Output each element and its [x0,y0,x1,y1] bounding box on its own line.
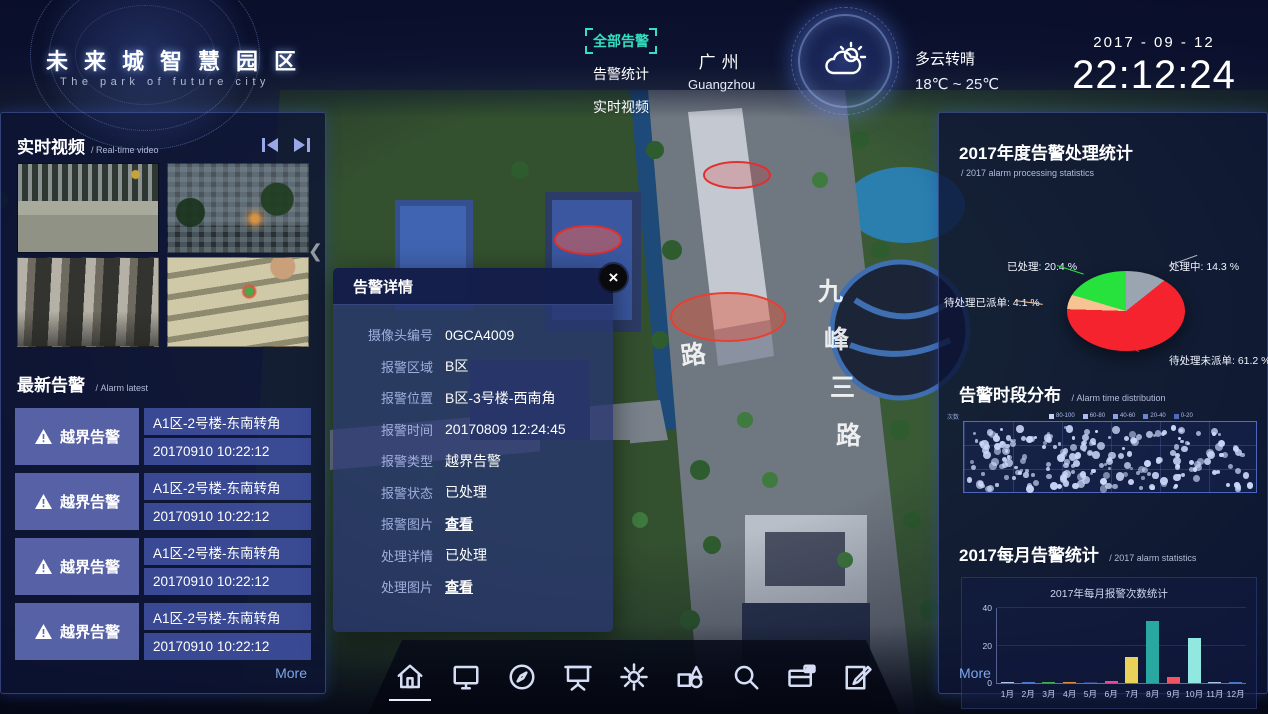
scatter-dot [1023,472,1028,477]
x-tick-label: 1月 [1001,688,1014,700]
scatter-dot [1118,453,1124,459]
alarm-row[interactable]: 越界告警A1区-2号楼-东南转角20170910 10:22:12 [15,603,311,660]
warning-icon [34,428,53,445]
right-panel: 2017年度告警处理统计 / 2017 alarm processing sta… [938,112,1268,694]
scatter-dot [987,485,994,492]
popup-row-label: 报警区域 [333,357,433,376]
scatter-dot [971,465,976,470]
scatter-dot [1092,451,1100,459]
scatter-legend-item: 80-100 [1049,413,1075,419]
scatter-dot [994,443,1001,450]
popup-row-label: 报警位置 [333,388,433,407]
close-icon[interactable]: × [600,264,627,291]
scatter-dot [1033,480,1039,486]
warning-icon [34,558,53,575]
skip-previous-icon[interactable] [261,137,279,153]
alarm-row[interactable]: 越界告警A1区-2号楼-东南转角20170910 10:22:12 [15,408,311,465]
scatter-dot [1106,458,1113,465]
legend-swatch-icon [1143,414,1148,419]
scatter-dot [1071,470,1075,474]
bottom-toolbar [368,640,900,714]
compass-icon[interactable] [505,657,539,697]
alarm-type-badge: 越界告警 [15,473,139,530]
scatter-dot [973,432,976,435]
x-tick-label: 6月 [1105,688,1118,700]
nav-item-active[interactable]: 全部告警 [585,28,657,54]
x-tick-label: 9月 [1167,688,1180,700]
weather-temperature: 18℃ ~ 25℃ [915,75,999,93]
scatter-dot [976,480,984,488]
alarm-row[interactable]: 越界告警A1区-2号楼-东南转角20170910 10:22:12 [15,538,311,595]
pie-label-done: 已处理: 20.4 % [1007,259,1077,274]
alarm-zone-1[interactable] [704,162,770,188]
legend-swatch-icon [1049,414,1054,419]
bar-10月[interactable] [1188,638,1201,683]
weather-description: 多云转晴 [915,48,999,69]
scatter-dot [1112,484,1117,489]
scatter-dot [1031,473,1035,477]
scatter-dot [1171,425,1176,430]
scatter-dot [1122,447,1125,450]
scatter-dot [967,477,973,483]
shapes-icon[interactable] [673,657,707,697]
popup-row-label: 摄像头编号 [333,325,433,344]
popup-row-label: 报警类型 [333,451,433,470]
scatter-dot [1046,474,1051,479]
video-grid [17,163,311,347]
app-subtitle: The park of future city [60,76,270,88]
popup-row-label: 处理详情 [333,546,433,565]
alarm-location: A1区-2号楼-东南转角 [144,603,311,630]
scatter-dot [1128,479,1134,485]
x-tick-label: 2月 [1022,688,1035,700]
scatter-dot [1097,442,1105,450]
scatter-dot [1095,430,1098,433]
scatter-dot [1058,442,1062,446]
popup-row-label: 报警图片 [333,514,433,533]
scatter-dot [1018,471,1022,475]
bar-4月[interactable] [1063,682,1076,683]
popup-row-value: B区 [445,356,468,376]
scatter-dot [1087,450,1093,456]
scatter-dot [1204,458,1211,465]
scatter-dot [1046,462,1051,467]
scatter-dot [1005,459,1013,467]
pie-label-unsent: 待处理未派单: 61.2 % [1169,353,1268,368]
bar-section-title: 2017每月告警统计 [959,546,1099,565]
scatter-dot [1042,445,1046,449]
scatter-dot [1108,467,1111,470]
alarm-time: 20170910 10:22:12 [144,568,311,595]
left-panel: 实时视频 / Real-time video ❮ 最新告警 / Alarm la… [0,112,326,694]
x-tick-label: 10月 [1185,688,1203,700]
scatter-dot [1075,456,1079,460]
scatter-legend: 80-10060-8040-6020-400-20 [1049,413,1193,419]
scatter-dot [1197,458,1204,465]
scatter-dot [1092,442,1096,446]
legend-swatch-icon [1083,414,1088,419]
popup-row: 处理图片查看 [333,571,613,603]
bar-5月[interactable] [1084,682,1097,683]
alarm-time: 20170910 10:22:12 [144,633,311,660]
scatter-dot [1021,436,1026,441]
scatter-dot [1174,484,1178,488]
bar-1月[interactable] [1001,682,1014,683]
scatter-dot [995,433,998,436]
app-title: 未来城智慧园区 [46,44,312,76]
x-tick-label: 3月 [1042,688,1055,700]
projection-screen-icon[interactable] [561,657,595,697]
video-section-title: 实时视频 [17,133,85,158]
scatter-dot [1181,446,1188,453]
scatter-dot [1072,436,1076,440]
popup-row-label: 报警状态 [333,483,433,502]
scatter-dot [1156,459,1161,464]
popup-row-value: 20170809 12:24:45 [445,421,566,437]
alarm-type-badge: 越界告警 [15,538,139,595]
weather-text: 多云转晴 18℃ ~ 25℃ [915,48,999,93]
scatter-dot [1034,436,1037,439]
scatter-dot [981,472,984,475]
alarm-zone-2[interactable] [555,226,621,254]
scatter-dot [1105,483,1112,490]
scatter-dot [1123,472,1128,477]
gridline [997,645,1246,646]
scatter-legend-item: 60-80 [1083,413,1105,419]
search-icon[interactable] [729,657,763,697]
scatter-dot [1162,430,1167,435]
scatter-dot [1193,475,1200,482]
pie-section-title: 2017年度告警处理统计 [959,144,1133,163]
popup-row: 报警区域B区 [333,351,613,383]
scatter-dot [1080,444,1087,451]
city-name-en: Guangzhou [688,77,755,92]
scatter-dot [1136,434,1143,441]
scatter-dot [1174,444,1180,450]
scatter-dot [1006,435,1011,440]
popup-row-label: 报警时间 [333,420,433,439]
scatter-dot [1013,439,1016,442]
legend-swatch-icon [1174,414,1179,419]
popup-row: 报警状态已处理 [333,477,613,509]
popup-header: 告警详情 [333,268,613,305]
scatter-dot [1152,472,1158,478]
bar-11月[interactable] [1208,682,1221,683]
scatter-dot [1000,428,1003,431]
scatter-dot [970,460,975,465]
scatter-dot [1189,460,1194,465]
popup-row: 报警时间20170809 12:24:45 [333,414,613,446]
scatter-dot [1104,463,1107,466]
scatter-dot [1072,483,1078,489]
scatter-dot [1175,464,1181,470]
scatter-dot [1228,464,1233,469]
scatter-dot [1196,431,1201,436]
video-thumbnail-2[interactable] [167,163,309,253]
scatter-dot [1004,475,1008,479]
scatter-dot [995,483,998,486]
scatter-dot [1063,463,1068,468]
video-section-subtitle: / Real-time video [91,145,159,155]
scatter-dot [1144,460,1151,467]
gridline [997,607,1246,608]
map-building-d-top [765,532,845,586]
video-thumbnail-3[interactable] [17,257,159,347]
skip-next-icon[interactable] [293,137,311,153]
scatter-dot [1124,436,1129,441]
scatter-dot [1155,430,1162,437]
scatter-dot [1181,473,1185,477]
alarm-location: A1区-2号楼-东南转角 [144,408,311,435]
popup-row: 摄像头编号0GCA4009 [333,319,613,351]
x-tick-label: 12月 [1227,688,1245,700]
scatter-dot [1240,453,1244,457]
city-name-cn: 广州 [688,48,755,73]
scatter-dot [1247,482,1253,488]
scatter-section-subtitle: / Alarm time distribution [1071,393,1165,403]
scatter-chart[interactable] [963,421,1257,493]
popup-view-link[interactable]: 查看 [445,577,473,597]
scatter-dot [1010,441,1016,447]
popup-title: 告警详情 [353,276,413,297]
scatter-dot [1112,426,1120,434]
scatter-dot [1050,482,1058,490]
nav-item-[interactable]: 实时视频 [585,94,657,120]
x-tick-label: 5月 [1084,688,1097,700]
bar-inner-title: 2017年每月报警次数统计 [962,586,1256,601]
bar-chart[interactable]: 2017年每月报警次数统计 020401月2月3月4月5月6月7月8月9月10月… [961,577,1257,709]
pie-graphic[interactable] [1067,271,1185,351]
id-card-icon[interactable] [785,657,819,697]
scatter-dot [1173,474,1181,482]
bar-12月[interactable] [1229,682,1242,683]
alarm-row[interactable]: 越界告警A1区-2号楼-东南转角20170910 10:22:12 [15,473,311,530]
scatter-dot [1146,431,1153,438]
bar-6月[interactable] [1105,681,1118,683]
x-tick-label: 11月 [1206,688,1223,700]
scatter-dot [1070,444,1077,451]
scatter-axis-label: 次数 [947,412,959,421]
scatter-dot [1206,449,1214,457]
weather-widget[interactable] [798,14,892,108]
popup-row-value: B区-3号楼-西南角 [445,388,555,408]
scatter-dot [991,458,999,466]
video-thumbnail-1[interactable] [17,163,159,253]
video-thumbnail-4[interactable] [167,257,309,347]
x-tick-label: 7月 [1125,688,1138,700]
scatter-dot [1215,443,1223,451]
bar-9月[interactable] [1167,677,1180,683]
pie-chart: 已处理: 20.4 % 处理中: 14.3 % 待处理已派单: 4.1 % 待处… [939,179,1268,369]
nav-item-[interactable]: 告警统计 [585,61,657,87]
popup-row: 报警位置B区-3号楼-西南角 [333,382,613,414]
scatter-dot [1127,451,1133,457]
x-tick-label: 4月 [1063,688,1076,700]
popup-row: 报警类型越界告警 [333,445,613,477]
home-icon[interactable] [393,657,427,697]
scatter-dot [1108,436,1111,439]
scatter-dot [1044,434,1052,442]
scatter-dot [1187,442,1190,445]
scatter-dot [1226,483,1230,487]
popup-view-link[interactable]: 查看 [445,514,473,534]
cloud-sun-icon [821,39,869,83]
road-label-side: 路 [679,339,710,370]
warning-icon [34,623,53,640]
alarm-location: A1区-2号楼-东南转角 [144,473,311,500]
scatter-dot [1139,486,1143,490]
bar-3月[interactable] [1042,682,1055,683]
scatter-section-title: 告警时段分布 [959,386,1061,405]
scatter-dot [975,439,978,442]
bar-2月[interactable] [1022,682,1035,683]
alarm-detail-popup: 告警详情 × 摄像头编号0GCA4009报警区域B区报警位置B区-3号楼-西南角… [333,268,613,632]
scatter-dot [1147,472,1151,476]
legend-swatch-icon [1113,414,1118,419]
scatter-dot [1043,441,1047,445]
alarm-zone-3[interactable] [671,293,785,341]
bar-section-subtitle: / 2017 alarm statistics [1109,553,1196,563]
alarm-time: 20170910 10:22:12 [144,438,311,465]
pie-section-subtitle: / 2017 alarm processing statistics [961,168,1133,178]
alarm-time: 20170910 10:22:12 [144,503,311,530]
y-tick-label: 40 [983,603,992,613]
scatter-dot [1212,470,1217,475]
bar-7月[interactable] [1125,657,1138,683]
scatter-dot [1160,477,1168,485]
main-nav: 全部告警告警统计实时视频 [566,28,676,127]
scatter-dot [1046,467,1050,471]
y-tick-label: 20 [983,641,992,651]
scatter-dot [1243,472,1249,478]
scatter-dot [1063,470,1071,478]
bar-plot-area: 020401月2月3月4月5月6月7月8月9月10月11月12月 [996,608,1246,684]
alarm-type-badge: 越界告警 [15,603,139,660]
stats-more-link[interactable]: More [959,665,991,681]
scatter-dot [1218,433,1221,436]
alarm-list: 越界告警A1区-2号楼-东南转角20170910 10:22:12越界告警A1区… [15,408,311,668]
edit-icon[interactable] [841,657,875,697]
popup-row-value: 0GCA4009 [445,327,514,343]
scatter-dot [1195,464,1202,471]
monitor-icon[interactable] [449,657,483,697]
alarm-section-subtitle: / Alarm latest [95,383,148,393]
city-block: 广州 Guangzhou [688,48,755,92]
scatter-dot [1130,467,1133,470]
scatter-dot [1022,454,1028,460]
scatter-dot [1091,469,1096,474]
carousel-chevron-icon[interactable]: ❮ [308,241,323,262]
x-tick-label: 8月 [1146,688,1159,700]
scatter-legend-item: 0-20 [1174,413,1193,419]
scatter-dot [1016,425,1023,432]
scatter-dot [1170,450,1176,456]
alarm-type-badge: 越界告警 [15,408,139,465]
warning-icon [34,493,53,510]
scatter-dot [1141,476,1145,480]
scatter-dot [1180,440,1183,443]
scatter-dot [1012,476,1016,480]
scatter-dot [1073,460,1080,467]
scatter-dot [1057,484,1062,489]
alarm-section-title: 最新告警 [17,376,85,395]
scatter-legend-item: 20-40 [1143,413,1165,419]
scatter-dot [1014,466,1018,470]
gear-icon[interactable] [617,657,651,697]
scatter-dot [1179,429,1183,433]
scatter-legend-item: 40-60 [1113,413,1135,419]
time-text: 22:12:24 [1070,53,1238,98]
date-text: 2017 - 09 - 12 [1070,34,1238,51]
scatter-dot [1235,468,1241,474]
scatter-dot [1026,436,1033,443]
popup-row-value: 已处理 [445,545,487,565]
dashboard: 九峰三路 路 未来城智慧园区 The park of future city 全… [0,0,1268,714]
scatter-dot [1026,485,1034,493]
alarm-more-link[interactable]: More [275,665,307,681]
scatter-dot [1084,429,1090,435]
bar-8月[interactable] [1146,621,1159,683]
popup-rows: 摄像头编号0GCA4009报警区域B区报警位置B区-3号楼-西南角报警时间201… [333,305,613,603]
datetime-block: 2017 - 09 - 12 22:12:24 [1070,34,1238,98]
popup-row-value: 越界告警 [445,451,501,471]
scatter-dot [1082,476,1090,484]
scatter-dot [1053,445,1057,449]
popup-row-label: 处理图片 [333,577,433,596]
alarm-location: A1区-2号楼-东南转角 [144,538,311,565]
popup-row: 处理详情已处理 [333,540,613,572]
scatter-dot [1063,480,1070,487]
popup-row: 报警图片查看 [333,508,613,540]
popup-row-value: 已处理 [445,482,487,502]
